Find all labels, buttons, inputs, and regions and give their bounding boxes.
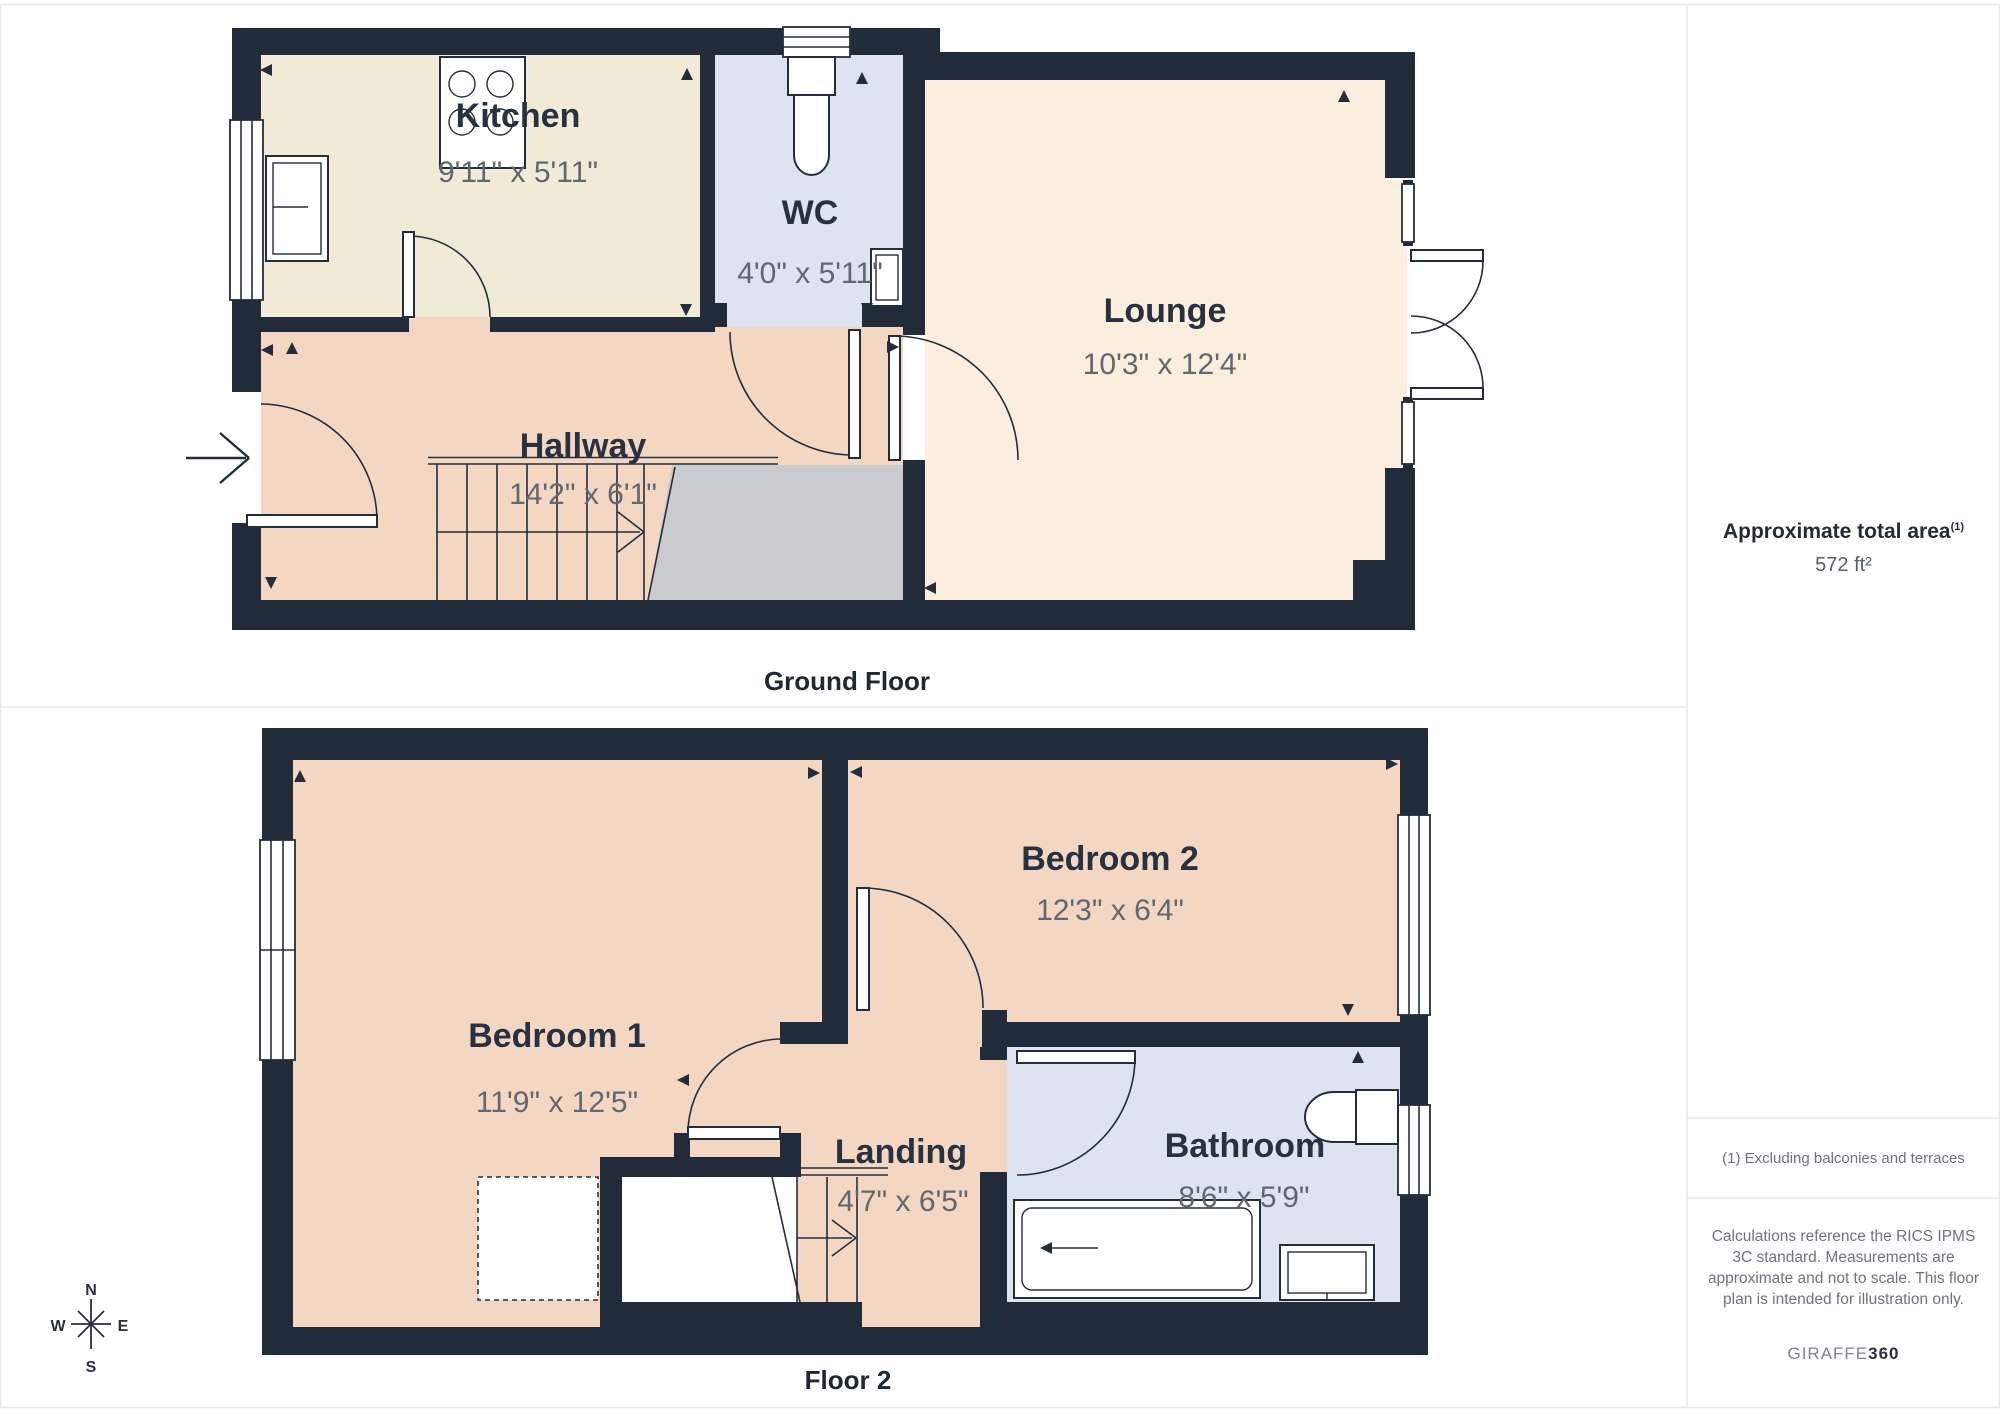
giraffe360-logo: GIRAFFE360: [1687, 1344, 2000, 1364]
disclaimer-text: Calculations reference the RICS IPMS 3C …: [1687, 1226, 2000, 1310]
compass-rose-icon: [71, 1299, 111, 1349]
room-label-landing: Landing: [835, 1133, 967, 1171]
bathtub-icon: [1014, 1200, 1260, 1298]
french-doors-icon: [1411, 250, 1483, 399]
ground-floor-plan: Kitchen 9'11" x 5'11" WC 4'0" x 5'11" Lo…: [186, 27, 1483, 696]
total-area-title: Approximate total area(1): [1687, 520, 2000, 544]
floorplan-page: { "colors": { "wall": "#212b3a", "kitche…: [0, 0, 2000, 1414]
stairwell-void: [622, 1177, 797, 1302]
toilet-icon: [788, 57, 835, 175]
giraffe360-logo-suffix: 360: [1868, 1344, 1899, 1363]
bedroom2-floor: [848, 760, 1400, 1022]
window-icon: [230, 120, 263, 300]
floor-2-plan: Bedroom 1 11'9" x 12'5" Bedroom 2 12'3" …: [260, 728, 1430, 1395]
total-area-title-text: Approximate total area: [1723, 520, 1951, 543]
room-label-lounge: Lounge: [1104, 292, 1227, 330]
room-dims-bathroom: 8'6" x 5'9": [1178, 1181, 1309, 1214]
room-label-bathroom: Bathroom: [1165, 1127, 1326, 1165]
room-dims-bedroom2: 12'3" x 6'4": [1036, 894, 1184, 927]
room-dims-landing: 4'7" x 6'5": [837, 1185, 968, 1218]
room-dims-bedroom1: 11'9" x 12'5": [476, 1086, 638, 1119]
room-label-kitchen: Kitchen: [456, 97, 581, 135]
compass-west-label: W: [50, 1318, 66, 1335]
lounge-floor: [925, 80, 1385, 600]
storage-dashed-area: [478, 1177, 598, 1300]
kitchen-sink-icon: [266, 156, 328, 261]
window-icon: [260, 840, 295, 1060]
room-label-hallway: Hallway: [520, 427, 647, 465]
compass-south-label: S: [86, 1359, 97, 1376]
room-dims-wc: 4'0" x 5'11": [737, 257, 883, 290]
window-icon: [783, 27, 850, 57]
room-dims-kitchen: 9'11" x 5'11": [438, 156, 598, 189]
total-area-value: 572 ft²: [1687, 554, 2000, 577]
room-dims-hallway: 14'2" x 6'1": [509, 478, 657, 511]
window-icon: [1398, 815, 1430, 1015]
compass-east-label: E: [118, 1318, 129, 1335]
room-dims-lounge: 10'3" x 12'4": [1083, 348, 1248, 381]
bathroom-sink-icon: [1280, 1245, 1374, 1300]
window-icon: [1398, 1105, 1430, 1195]
floor-caption-2: Floor 2: [805, 1365, 892, 1395]
total-area-footnote-ref: (1): [1951, 521, 1964, 533]
floor-caption-ground: Ground Floor: [764, 666, 930, 696]
entrance-arrow-icon: [186, 433, 249, 483]
room-label-bedroom2: Bedroom 2: [1021, 840, 1199, 878]
footnote-text: (1) Excluding balconies and terraces: [1687, 1150, 2000, 1167]
compass-north-label: N: [85, 1282, 97, 1299]
giraffe360-logo-name: GIRAFFE: [1787, 1344, 1868, 1363]
floorplan-canvas: Kitchen 9'11" x 5'11" WC 4'0" x 5'11" Lo…: [0, 0, 2000, 1414]
understairs-area: [648, 465, 903, 600]
room-label-bedroom1: Bedroom 1: [468, 1017, 646, 1055]
room-label-wc: WC: [782, 194, 839, 232]
